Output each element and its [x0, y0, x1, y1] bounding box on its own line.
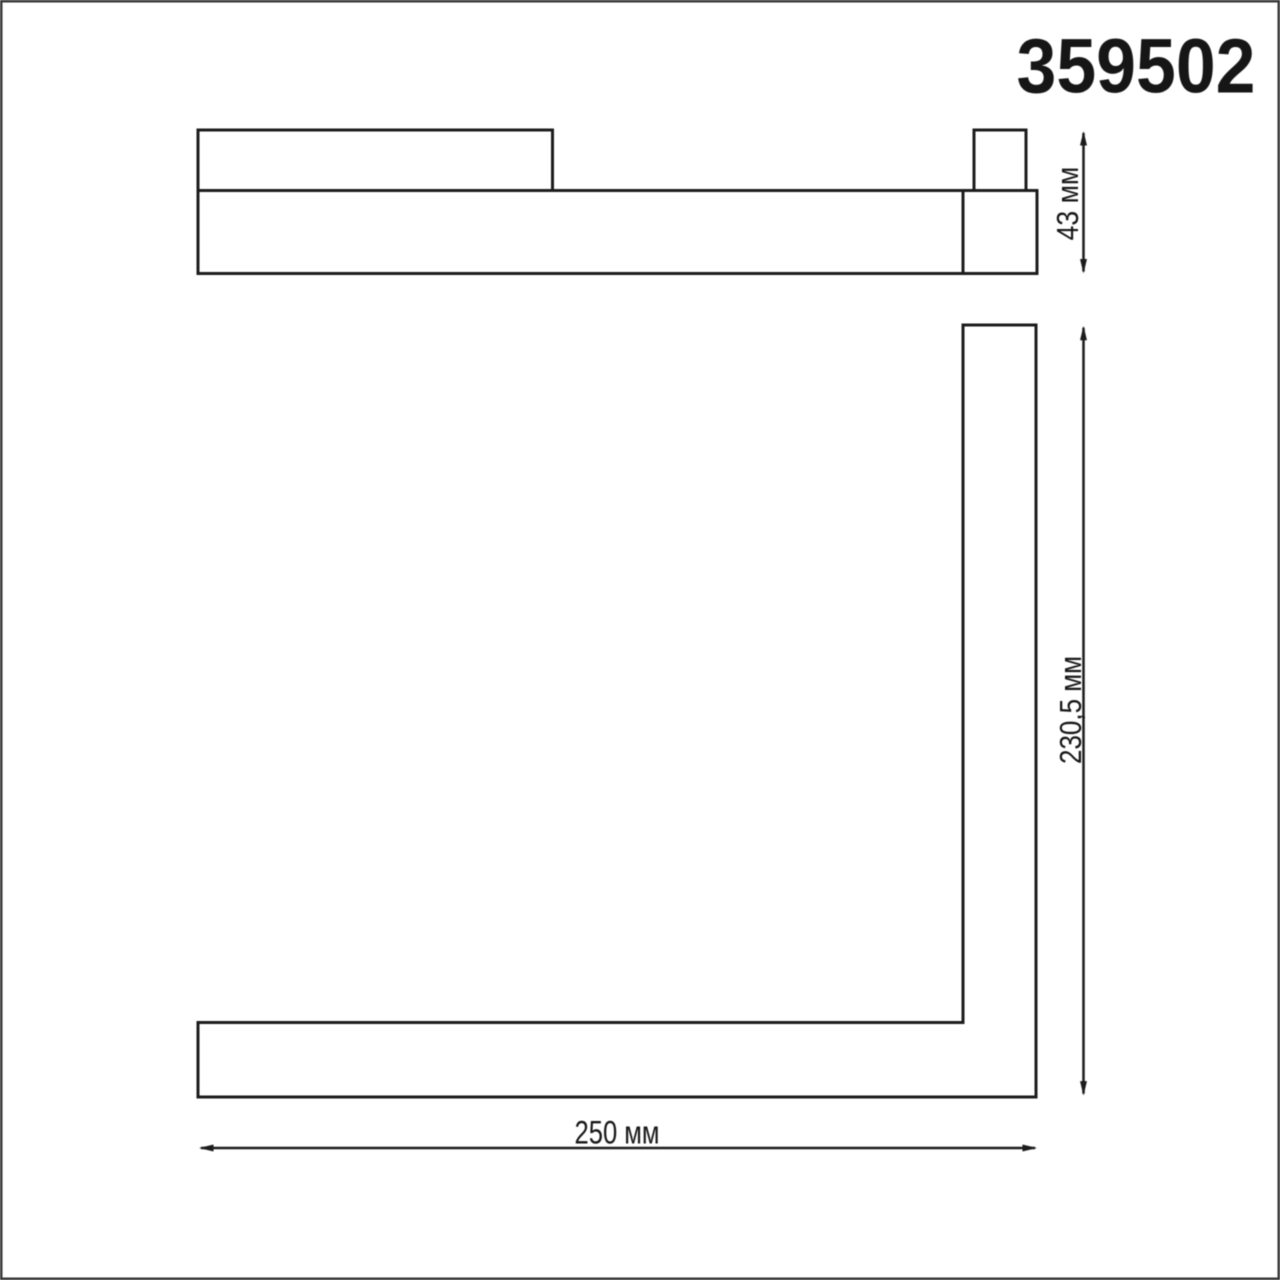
- svg-text:230,5 мм: 230,5 мм: [1053, 656, 1088, 764]
- svg-text:43 мм: 43 мм: [1050, 167, 1085, 241]
- svg-text:359502: 359502: [1017, 24, 1256, 110]
- svg-text:250 мм: 250 мм: [575, 1115, 660, 1151]
